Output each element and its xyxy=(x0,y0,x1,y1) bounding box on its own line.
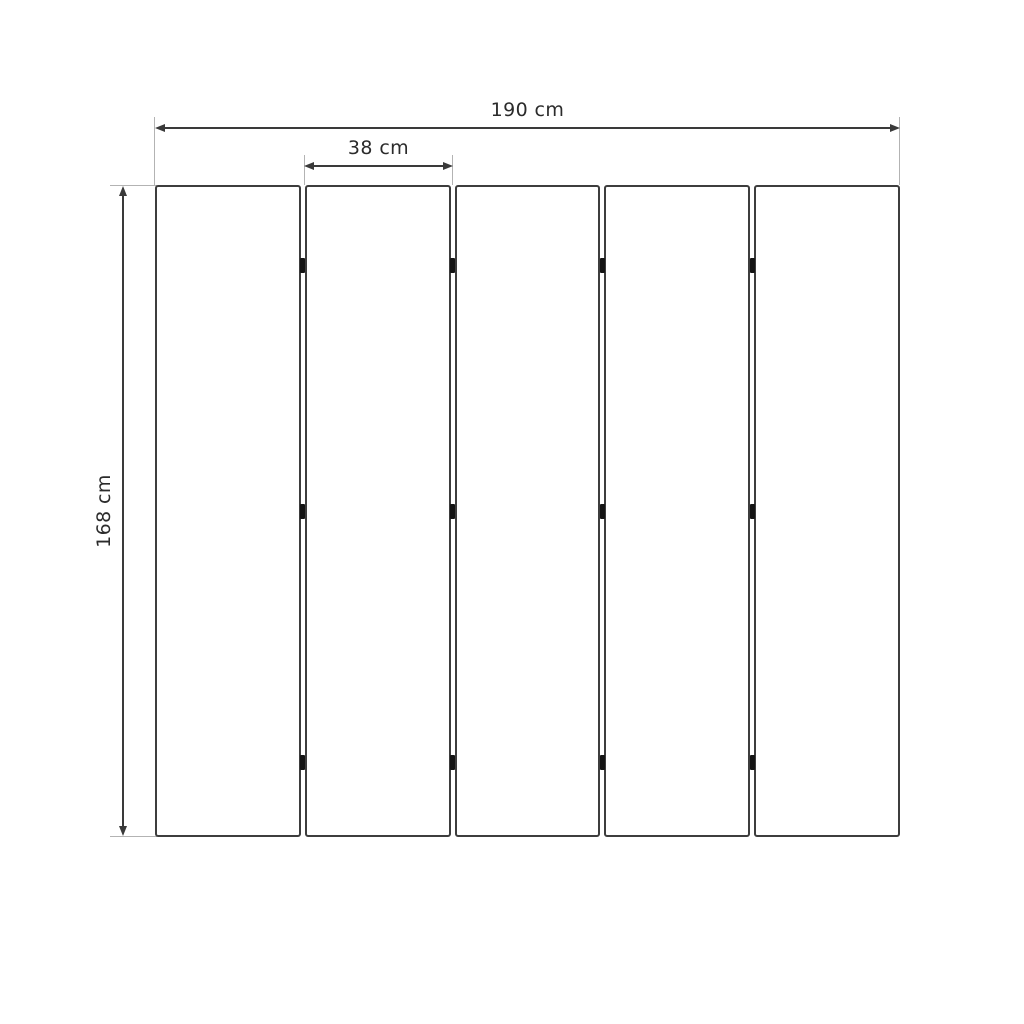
hinge-marker xyxy=(450,258,455,273)
height-label: 168 cm xyxy=(92,466,116,556)
extension-line-height-bottom xyxy=(110,836,157,837)
hinge-marker xyxy=(750,755,755,770)
arrowhead-right-icon xyxy=(443,162,453,170)
panel-dimension-diagram: 190 cm 38 cm 168 cm xyxy=(0,0,1024,1024)
dimension-line-height xyxy=(122,193,124,829)
hinge-marker xyxy=(600,258,605,273)
panel-4 xyxy=(604,185,750,837)
hinge-marker xyxy=(300,504,305,519)
arrowhead-left-icon xyxy=(155,124,165,132)
hinge-marker xyxy=(300,755,305,770)
panel-1 xyxy=(155,185,301,837)
panel-3 xyxy=(455,185,601,837)
extension-line-height-top xyxy=(110,185,157,186)
hinge-marker xyxy=(750,258,755,273)
panel-5 xyxy=(754,185,900,837)
total-width-label: 190 cm xyxy=(155,98,900,122)
hinge-marker xyxy=(300,258,305,273)
dimension-line-total-width xyxy=(162,127,893,129)
hinge-marker xyxy=(450,755,455,770)
arrowhead-up-icon xyxy=(119,186,127,196)
panels-row xyxy=(155,185,900,837)
dimension-line-panel-width xyxy=(311,165,446,167)
arrowhead-left-icon xyxy=(304,162,314,170)
arrowhead-down-icon xyxy=(119,826,127,836)
hinge-marker xyxy=(600,755,605,770)
panel-width-label: 38 cm xyxy=(304,136,453,160)
panel-2 xyxy=(305,185,451,837)
hinge-marker xyxy=(450,504,455,519)
hinge-marker xyxy=(600,504,605,519)
arrowhead-right-icon xyxy=(890,124,900,132)
hinge-marker xyxy=(750,504,755,519)
